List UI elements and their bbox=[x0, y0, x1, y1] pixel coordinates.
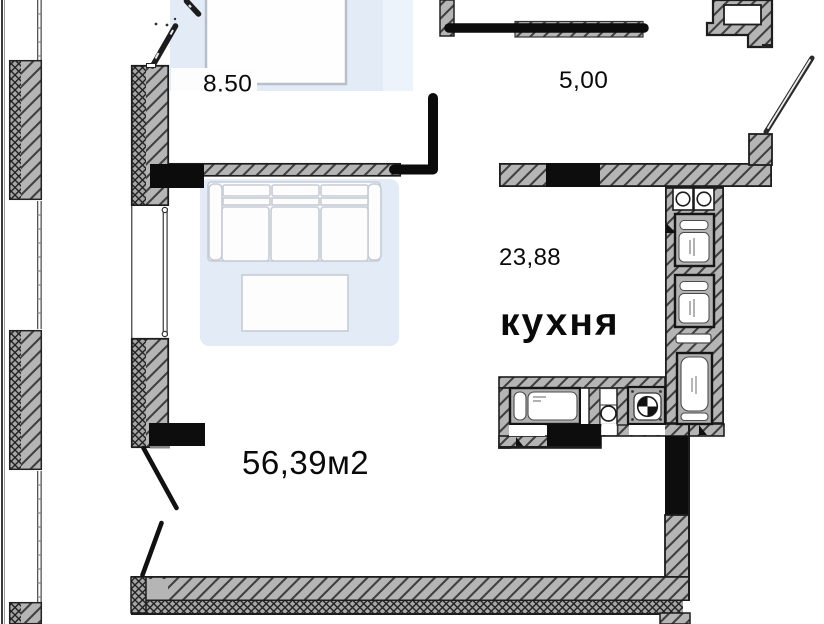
svg-text:5,00: 5,00 bbox=[559, 67, 608, 94]
svg-text:56,39м2: 56,39м2 bbox=[242, 444, 369, 481]
svg-text:кухня: кухня bbox=[500, 301, 620, 344]
svg-text:23,88: 23,88 bbox=[499, 244, 561, 271]
svg-text:8.50: 8.50 bbox=[203, 71, 252, 98]
